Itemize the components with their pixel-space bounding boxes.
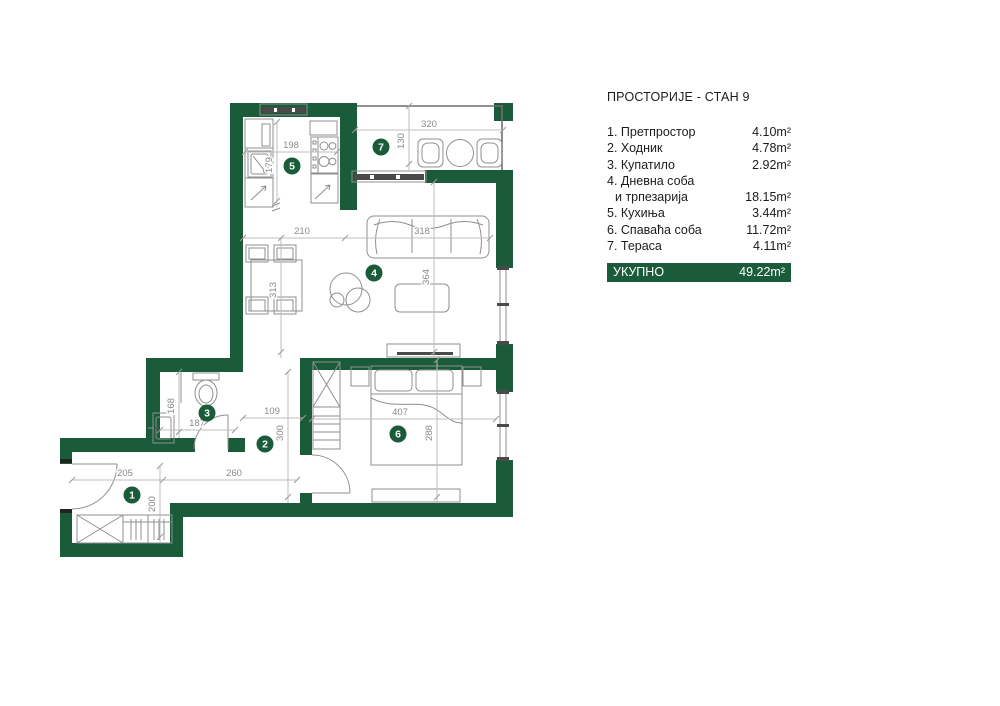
dimension-label: 318: [414, 226, 430, 237]
dimension-label: 205: [117, 468, 133, 479]
room-list-item: 6. Спаваћа соба11.72m²: [607, 222, 791, 238]
room-list-item: 2. Ходник4.78m²: [607, 140, 791, 156]
room-list-item: и трпезарија18.15m²: [607, 189, 791, 205]
legend-title: ПРОСТОРИЈЕ - СТАН 9: [607, 90, 791, 104]
room-marker-number: 5: [289, 161, 295, 173]
floor-plan: 1981793201302103183643131093001871684072…: [0, 0, 1000, 706]
dimension-label: 260: [226, 468, 242, 479]
dimension-label: 300: [275, 425, 286, 441]
tv-stand: [387, 344, 460, 357]
room-marker-number: 4: [371, 268, 377, 280]
dimension-label: 210: [294, 226, 310, 237]
bed: [371, 366, 462, 465]
room-marker-number: 7: [378, 142, 384, 154]
total-area: 49.22m²: [739, 265, 785, 279]
room-item-label: 4. Дневна соба: [607, 173, 694, 189]
dimension-label: 200: [147, 496, 158, 512]
room-item-label: 3. Купатило: [607, 157, 675, 173]
sofa: [367, 216, 489, 258]
dimension-label: 313: [268, 282, 279, 298]
dimension-label: 168: [166, 398, 177, 414]
room-item-label: и трпезарија: [607, 189, 688, 205]
room-item-area: 4.10m²: [752, 124, 791, 140]
room-list-item: 5. Кухиња3.44m²: [607, 205, 791, 221]
dining-set: [246, 245, 302, 314]
room-item-label: 7. Тераса: [607, 238, 662, 254]
pillow-icon: [375, 370, 412, 391]
room-item-area: 11.72m²: [746, 222, 791, 238]
room-item-area: 4.78m²: [752, 140, 791, 156]
room-marker-number: 6: [395, 429, 401, 441]
room-marker-number: 1: [129, 490, 135, 502]
room-item-area: 18.15m²: [745, 189, 791, 205]
dimension-label: 179: [264, 157, 275, 173]
bedroom-door-icon: [312, 455, 350, 493]
coffee-table: [395, 284, 449, 312]
dimension-label: 109: [264, 406, 280, 417]
room-item-area: 3.44m²: [752, 205, 791, 221]
dimension-label: 198: [283, 140, 299, 151]
terrace-table-icon: [447, 140, 474, 167]
room-item-label: 5. Кухиња: [607, 205, 665, 221]
room-list: 1. Претпростор4.10m²2. Ходник4.78m²3. Ку…: [607, 124, 791, 254]
room-list-item: 1. Претпростор4.10m²: [607, 124, 791, 140]
dresser: [372, 489, 460, 502]
room-marker-number: 3: [204, 408, 210, 420]
dimension-label: 130: [396, 133, 407, 149]
room-item-label: 1. Претпростор: [607, 124, 696, 140]
room-list-item: 4. Дневна соба: [607, 173, 791, 189]
dimension-label: 320: [421, 119, 437, 130]
dimension-label: 407: [392, 407, 408, 418]
terrace-furniture-set: [418, 139, 502, 167]
room-item-label: 6. Спаваћа соба: [607, 222, 702, 238]
terrace-railing: [357, 106, 503, 170]
room-item-area: 2.92m²: [752, 157, 791, 173]
pillow-icon: [416, 370, 453, 391]
page: 1981793201302103183643131093001871684072…: [0, 0, 1000, 706]
total-label: УКУПНО: [613, 265, 664, 279]
plant-icon: [330, 273, 370, 312]
entry-door-icon: [72, 464, 117, 509]
dimension-label: 364: [421, 269, 432, 285]
room-list-item: 3. Купатило2.92m²: [607, 157, 791, 173]
room-item-area: 4.11m²: [753, 238, 791, 254]
terrace-sliding-door-icon: [352, 171, 426, 182]
room-list-item: 7. Тераса4.11m²: [607, 238, 791, 254]
kitchen-counter-right: [310, 121, 338, 203]
total-bar: УКУПНО 49.22m²: [607, 263, 791, 282]
toilet-icon: [193, 373, 219, 406]
room-item-label: 2. Ходник: [607, 140, 662, 156]
room-legend: ПРОСТОРИЈЕ - СТАН 9 1. Претпростор4.10m²…: [607, 90, 791, 282]
room-marker-number: 2: [262, 439, 268, 451]
wardrobe: [313, 362, 340, 449]
tv-icon: [397, 352, 453, 355]
dimension-label: 288: [424, 425, 435, 441]
stove-icon: [311, 137, 338, 173]
